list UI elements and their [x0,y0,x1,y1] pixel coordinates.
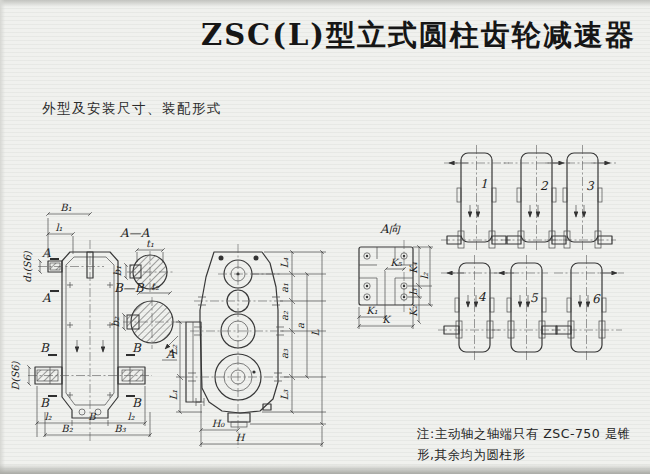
assembly-form-2: 2 [501,145,571,252]
dim-b2-key: b₂ [110,316,121,327]
dim-a: a [295,323,306,329]
dim-l2-left: l₂ [44,411,52,422]
dim-L: L [310,329,321,336]
dim-K2: K₂ [408,304,419,316]
dim-b1: B₁ [60,202,71,213]
assembly-form-6: 6 [552,255,624,362]
assembly-number-3: 3 [586,179,595,193]
dim-t2: t₂ [151,281,160,292]
cut-label-a-bottom: A [41,291,51,305]
dim-K5: K₅ [390,257,402,268]
view-a-title: A向 [379,222,401,236]
footnote-line2: 形,其余均为圆柱形 [417,444,647,465]
dim-d1: d₁(S6) [22,250,33,283]
assembly-form-5: 5 [492,255,560,362]
dim-l2-plate: l₂ [419,271,430,279]
dim-b1-key: b₁ [112,266,123,276]
engineering-drawing: A A B B B B B₁ l₁ d₁(S6) D(S6) l₂ B l₂ B… [0,0,650,474]
side-view: L₄ a₁ a₂ a₃ L₃ a L L₂ L₁ H₀ H [168,244,326,448]
dim-b3: B₃ [114,423,126,434]
dim-L1: L₁ [168,390,179,401]
dim-t1: t₁ [146,238,154,249]
assembly-form-1: 1 [441,145,511,252]
cut-label-b-bl: B [40,396,50,410]
cut-label-b-br: B [132,396,142,410]
assembly-number-4: 4 [478,290,486,304]
dim-a1: a₁ [279,283,290,293]
dim-H: H [236,432,246,443]
assembly-number-1: 1 [480,177,488,191]
footnote: 注:主动轴之轴端只有 ZSC-750 是锥 形,其余均为圆柱形 [417,423,647,465]
dim-a3: a₃ [279,348,290,359]
cut-label-b-tl: B [40,341,50,355]
view-a: A向 K₅ K₄ l₃ K₂ l₂ K₁ K [359,222,433,329]
dim-L2: L₂ [168,344,179,356]
dim-K: K [382,314,392,325]
dim-a2: a₂ [279,310,290,321]
dim-l2-right: l₂ [127,411,135,422]
assembly-number-5: 5 [530,291,539,305]
dim-b-base: B [88,411,96,422]
assembly-form-4: 4 [438,255,500,362]
dim-l3: l₃ [408,287,419,295]
dim-L3: L₃ [279,389,290,401]
dim-H0: H₀ [212,418,226,429]
assembly-number-6: 6 [592,292,601,306]
assembly-number-2: 2 [540,179,549,193]
footnote-line1: 注:主动轴之轴端只有 ZSC-750 是锥 [417,423,647,444]
dim-l1: l₁ [55,222,62,233]
dim-b2: B₂ [61,423,73,434]
cut-label-b-tr: B [132,341,142,355]
assembly-diagrams: 1 2 [438,145,624,362]
dim-L4: L₄ [279,257,290,269]
dim-K1: K₁ [366,305,377,316]
cut-label-a-top: A [41,246,51,260]
dim-K4: K₄ [408,261,419,273]
dim-D: D(S6) [10,360,21,390]
